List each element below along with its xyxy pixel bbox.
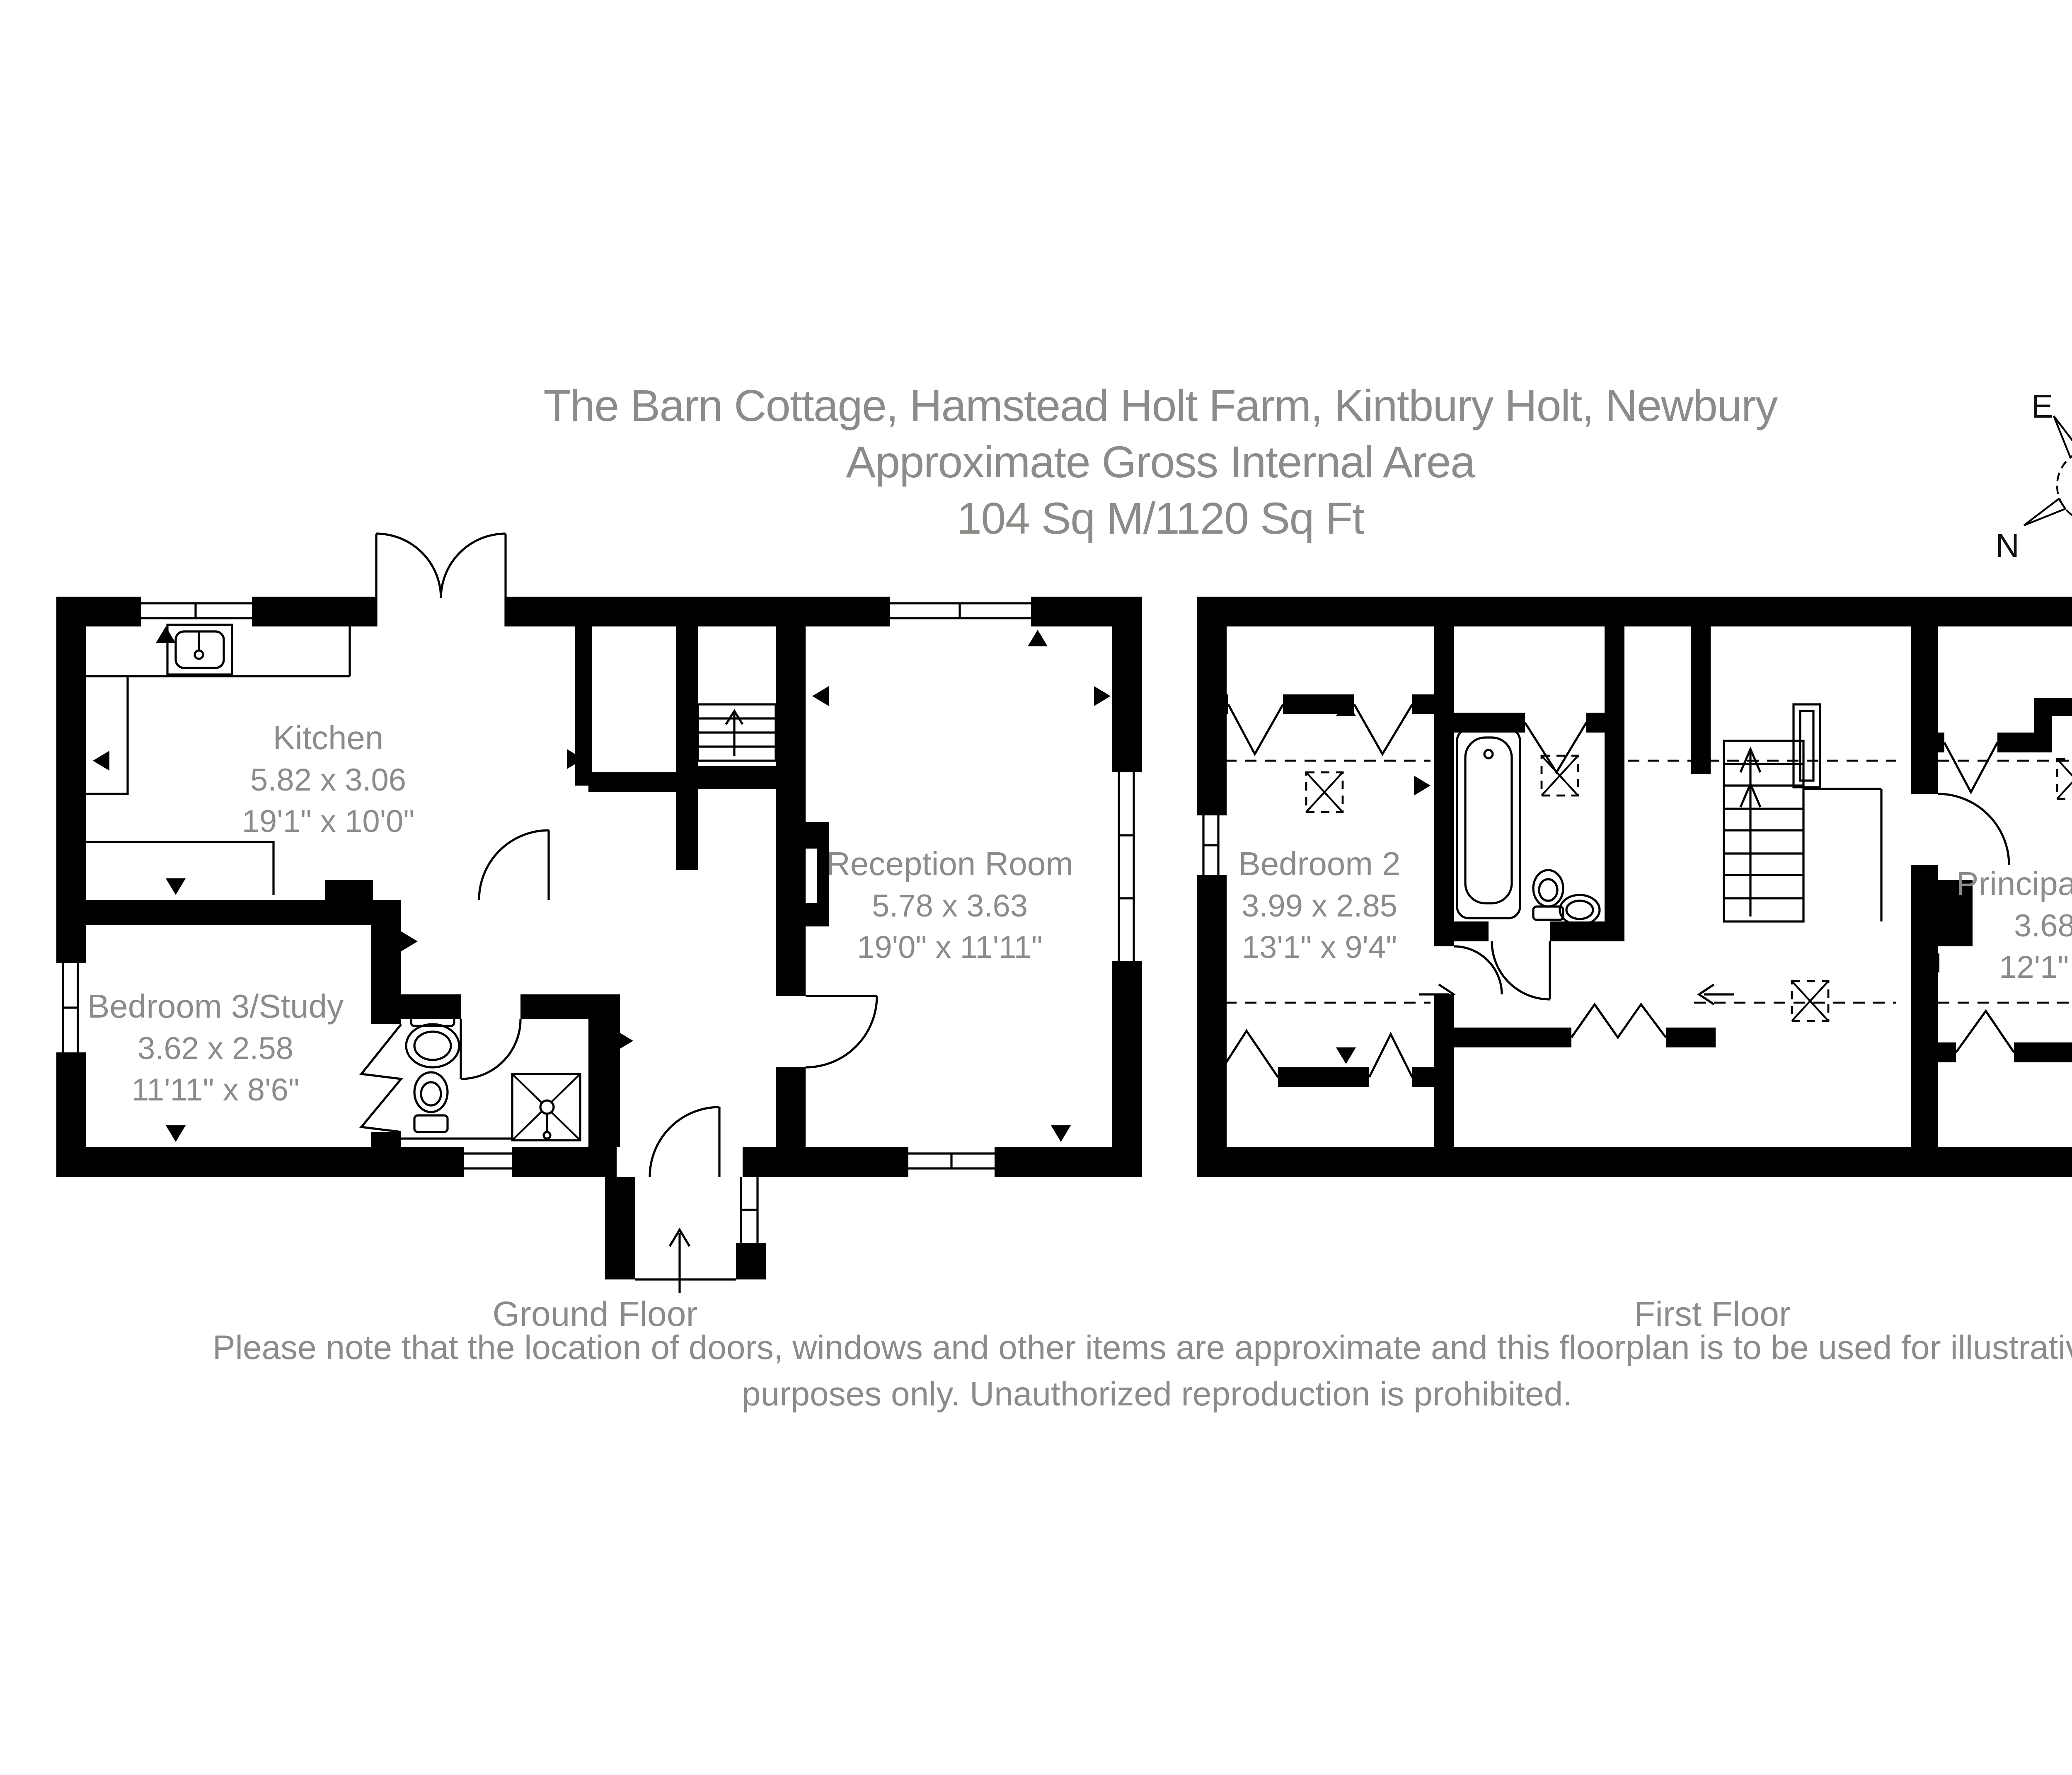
ground-floor-plan: Kitchen 5.82 x 3.06 19'1" x 10'0" Recept… (56, 534, 1142, 1293)
kitchen-label: Kitchen 5.82 x 3.06 19'1" x 10'0" (242, 719, 415, 839)
basin-ff (1560, 895, 1600, 925)
bedroom2-window-left (1203, 815, 1218, 875)
kitchen-sink (167, 625, 232, 675)
area-subtitle: Approximate Gross Internal Area (846, 437, 1476, 487)
basin-gf (406, 1016, 459, 1067)
toilet-gf (414, 1072, 448, 1132)
bedroom2-door (1454, 946, 1502, 994)
shower-gf (512, 1074, 580, 1140)
reception-window-right (1119, 772, 1134, 961)
disclaimer-line1: Please note that the location of doors, … (213, 1329, 2072, 1366)
entry-arrow (670, 1230, 690, 1293)
reception-label: Reception Room 5.78 x 3.63 19'0" x 11'11… (826, 845, 1073, 965)
bedroom2-skylight (1306, 772, 1343, 812)
bathroom-door-gf (461, 1019, 520, 1079)
kitchen-name: Kitchen (273, 719, 384, 756)
front-porch-double-doors (376, 534, 506, 626)
landing (1419, 626, 1896, 1047)
kitchen-metric: 5.82 x 3.06 (250, 762, 406, 798)
kitchen-door (479, 830, 549, 900)
reception-window-top (890, 603, 1031, 618)
bedroom2-name: Bedroom 2 (1238, 845, 1400, 882)
fireplace (806, 822, 829, 926)
bathroom-door-ff (1492, 941, 1550, 999)
bedroom3-name: Bedroom 3/Study (87, 988, 344, 1025)
landing-dormer-window (1571, 1004, 1666, 1037)
bedroom2-top-dormer (1203, 694, 1434, 754)
floorplan-drawing: The Barn Cottage, Hamstead Holt Farm, Ki… (0, 0, 2072, 1775)
bedroom2-metric: 3.99 x 2.85 (1242, 888, 1397, 924)
bedroom3-bifold-door (361, 1024, 401, 1132)
principal-imperial: 12'1" x 11'11" (1999, 950, 2072, 985)
ground-floor-stairs (698, 704, 776, 761)
ground-floor-caption: Ground Floor (493, 1294, 698, 1333)
first-floor-plan: Bedroom 2 3.99 x 2.85 13'1" x 9'4" Princ… (1197, 597, 2072, 1177)
first-floor-caption: First Floor (1634, 1294, 1791, 1333)
reception-door (806, 996, 877, 1067)
area-value: 104 Sq M/1120 Sq Ft (957, 493, 1365, 543)
principal-label: Principal Bedroom 3.68 x 3.63 12'1" x 11… (1956, 865, 2072, 985)
principal-bottom-dormer (1938, 1011, 2072, 1062)
reception-imperial: 19'0" x 11'11" (857, 930, 1043, 965)
disclaimer-line2: purposes only. Unauthorized reproduction… (742, 1375, 1572, 1413)
bathtub (1457, 729, 1520, 918)
ff-bathroom (1454, 626, 1624, 999)
principal-name: Principal Bedroom (1956, 865, 2072, 902)
principal-skylight (2057, 759, 2072, 799)
title-block: The Barn Cottage, Hamstead Holt Farm, Ki… (543, 380, 1778, 543)
landing-arrow-left (1699, 984, 1734, 1004)
compass-rose: E S N W (1995, 388, 2072, 597)
stairs-handrail (1794, 704, 1881, 921)
bathroom-window-bottom (464, 1154, 512, 1168)
bedroom2-label: Bedroom 2 3.99 x 2.85 13'1" x 9'4" (1238, 845, 1400, 965)
principal-top-dormer (1938, 698, 2072, 792)
bedroom3-imperial: 11'11" x 8'6" (131, 1072, 300, 1108)
first-floor-stairs (1724, 704, 1881, 921)
compass-label-e: E (2031, 388, 2053, 425)
floorplan-page: The Barn Cottage, Hamstead Holt Farm, Ki… (0, 0, 2072, 1775)
principal-door (1938, 794, 2009, 865)
ground-floor-internal-walls (86, 623, 806, 1147)
entry-porch (605, 1177, 766, 1293)
toilet-ff (1533, 870, 1563, 920)
bedroom3-metric: 3.62 x 2.58 (138, 1031, 293, 1066)
gf-bathroom-fixtures (401, 1016, 580, 1140)
principal-metric: 3.68 x 3.63 (2014, 908, 2072, 943)
reception-metric: 5.78 x 3.63 (872, 888, 1028, 924)
reception-name: Reception Room (826, 845, 1073, 882)
bedroom3-label: Bedroom 3/Study 3.62 x 2.58 11'11" x 8'6… (87, 988, 344, 1108)
compass-point-north (2024, 499, 2065, 525)
bedroom3-window-left (63, 963, 78, 1052)
bathroom-skylight (1542, 756, 1578, 796)
landing-skylight (1792, 981, 1828, 1021)
stairs-up-arrow (1740, 749, 1760, 917)
bedroom2-imperial: 13'1" x 9'4" (1242, 930, 1397, 965)
compass-label-n: N (1995, 527, 2019, 564)
kitchen-counter (76, 623, 350, 895)
bedroom2-bottom-dormer (1203, 1031, 1434, 1087)
bedroom2-right-wall (1434, 626, 1454, 1147)
compass-point-east (2054, 416, 2072, 457)
property-address: The Barn Cottage, Hamstead Holt Farm, Ki… (543, 380, 1778, 430)
reception-window-bottom (908, 1154, 995, 1168)
kitchen-window-top (141, 603, 252, 618)
kitchen-imperial: 19'1" x 10'0" (242, 804, 415, 839)
hall-porch-door (650, 1107, 719, 1177)
